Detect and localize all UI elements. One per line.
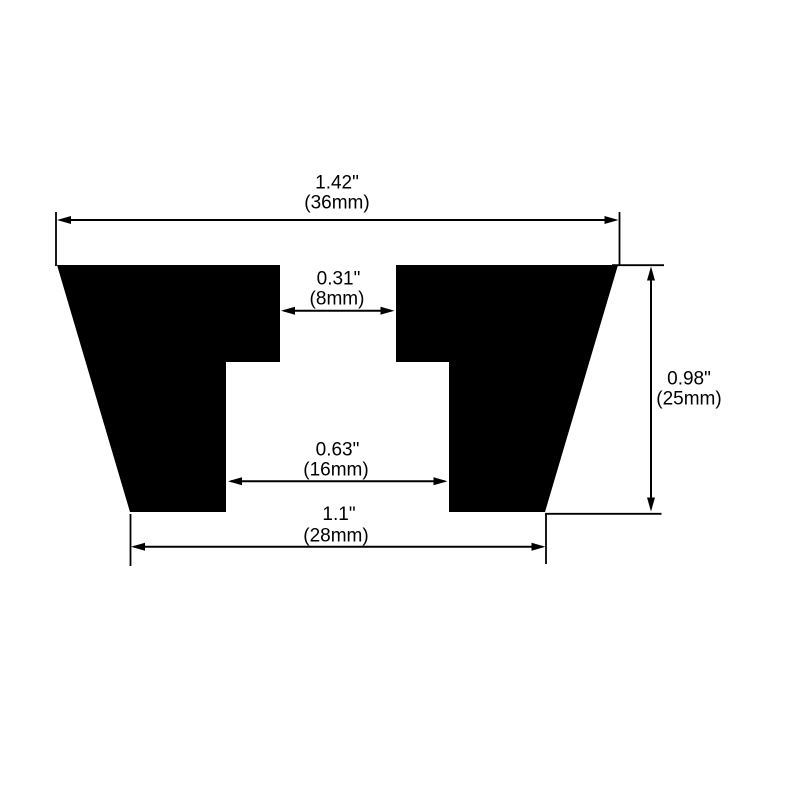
svg-text:1.42": 1.42" bbox=[315, 173, 359, 194]
svg-text:(36mm): (36mm) bbox=[304, 193, 369, 214]
svg-text:(16mm): (16mm) bbox=[303, 459, 368, 480]
svg-text:1.1": 1.1" bbox=[322, 504, 355, 525]
svg-text:0.31": 0.31" bbox=[317, 268, 361, 289]
svg-text:(25mm): (25mm) bbox=[656, 389, 721, 410]
svg-text:0.63": 0.63" bbox=[316, 439, 360, 460]
svg-text:0.98": 0.98" bbox=[667, 368, 711, 389]
svg-text:(28mm): (28mm) bbox=[303, 525, 368, 546]
svg-text:(8mm): (8mm) bbox=[310, 288, 365, 309]
